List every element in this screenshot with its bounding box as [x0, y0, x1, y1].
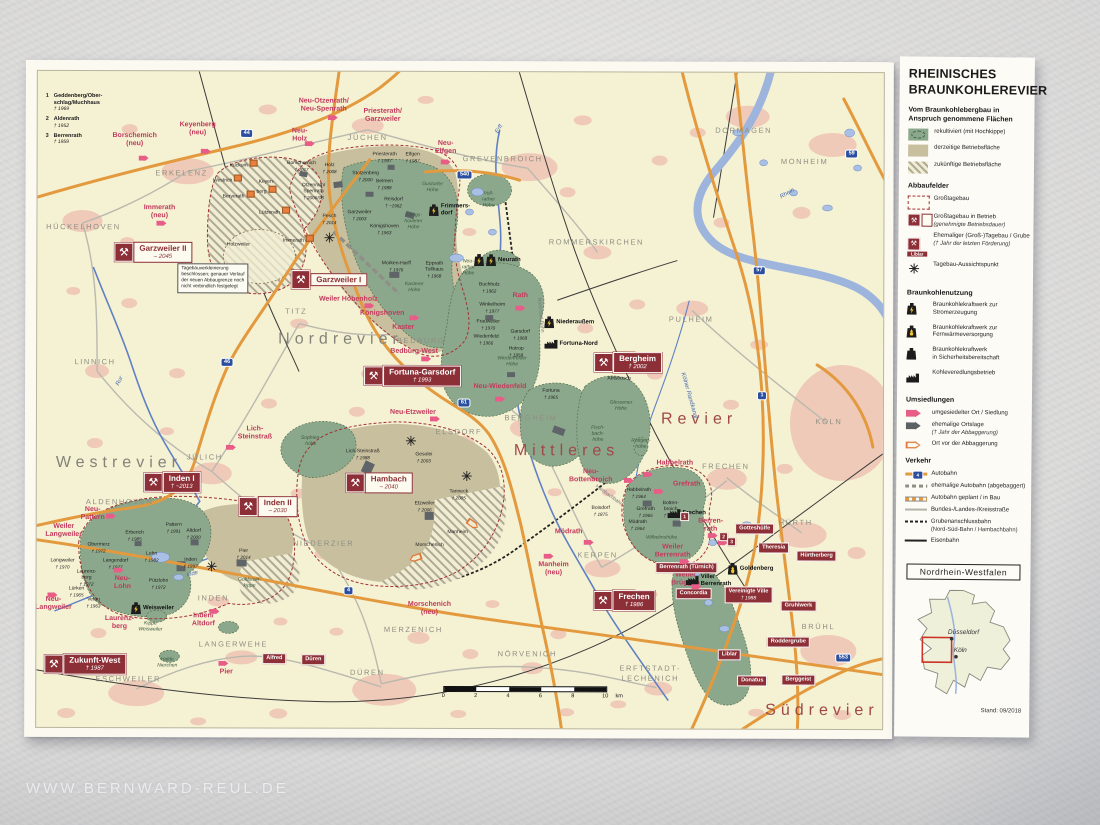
village-name: Obermerz	[87, 542, 109, 548]
um-gray-icon	[906, 422, 921, 430]
autobahn-shield: 46	[221, 358, 234, 367]
resettled-place-label: Manheim (neu)	[538, 561, 568, 577]
former-village-label: Lich-Steinstraß† 1988	[346, 449, 380, 460]
former-village-label: Epprath Tollhaus† 1968	[425, 262, 443, 279]
scale-tick-label: 2	[474, 693, 477, 699]
mine-year: – 2030	[264, 508, 292, 515]
spoil-tip-label: Gustorfer Höhe	[422, 182, 443, 194]
village-demolition-year: † 2008	[323, 169, 337, 174]
former-village-label: Kuckum	[230, 160, 258, 170]
spoil-tip-label: Kasterer Höhe	[405, 282, 424, 294]
mine-year: † 1987	[69, 665, 120, 672]
resettled-place-label: Keyenberg (neu)	[180, 121, 216, 137]
legend-item: Grubenanschlussbahn(Nord-Süd-Bahn / Hamb…	[905, 519, 1023, 535]
resettled-place-label: Weiler Berrenrath	[655, 543, 691, 559]
resettled-place-label: Kaster	[392, 324, 414, 332]
legend-item: ehemalige Ortslage(† Jahr der Abbaggerun…	[906, 422, 1024, 438]
former-village-label: Garsdorf† 1968	[510, 330, 529, 341]
power-plant-name: Neurath	[498, 257, 521, 264]
legend-item-label: Eisenbahn	[931, 538, 959, 546]
legend-item: Braunkohlekraftwerk zur Stromerzeugung	[907, 302, 1025, 321]
city-label: ERFTSTADT- LECHENICH	[619, 664, 681, 684]
village-demolition-year: † 1963	[370, 230, 399, 235]
factory-icon	[668, 509, 681, 518]
village-demolition-year: † 1985	[125, 536, 144, 541]
legend-item: Autobahn geplant / in Bau	[905, 495, 1023, 504]
mine-year: † 2002	[619, 364, 656, 371]
city-label: KÖLN	[816, 417, 843, 427]
village-demolition-year: † 1965	[637, 513, 655, 518]
resettled-place-label: Inden/ Altdorf	[192, 612, 215, 628]
map-canvas: WestrevierNordrevierMittleresRevierSüdre…	[35, 70, 885, 730]
village-name: Abtsbusch	[607, 376, 630, 382]
resettled-place-label: Neu- Langweiler	[35, 596, 72, 612]
village-name: Wiedenfeld	[474, 334, 499, 340]
active-mine-box	[921, 214, 932, 227]
item-name: Geddenberg/Ober- schlag/Muchhaus† 1969	[54, 93, 103, 112]
item-name: Berrenrath† 1959	[54, 133, 82, 146]
power-plant: Niederaußem	[544, 316, 594, 328]
legend-item: Tagebau-Aussichtspunkt	[907, 261, 1025, 281]
sw-rek-icon	[908, 128, 928, 140]
vk-b-icon	[905, 509, 927, 511]
village-name: Frauweiler	[477, 319, 500, 325]
legend-body: Vom Braunkohlebergbau in Anspruch genomm…	[905, 98, 1027, 551]
legend-item: Bundes-/Landes-/Kreisstraße	[905, 507, 1023, 516]
power-plant: Fortuna-Nord	[544, 340, 597, 349]
former-village-label: Holz† 2008	[323, 163, 337, 174]
former-village-label: Otzenrath/ Spenrath† 2006/08	[302, 183, 325, 200]
vk-g-icon	[905, 497, 927, 502]
crossed-hammers-icon: ⚒	[144, 473, 163, 492]
mine-label-frechen: ⚒Frechen† 1986	[593, 590, 655, 611]
photo-of-mining-map-poster: WestrevierNordrevierMittleresRevierSüdre…	[0, 0, 1100, 825]
former-pit-label: Alfred	[262, 653, 286, 664]
former-village-label: Manheim	[447, 530, 468, 536]
village-demolition-year: † 1965	[69, 592, 84, 597]
city-label: INDEN	[198, 593, 229, 603]
village-name: Buchholz	[479, 282, 500, 288]
legend-item-sublabel: (Nord-Süd-Bahn / Hambachbahn)	[931, 526, 1018, 534]
legend-item: Ort vor der Abbaggerung	[906, 441, 1024, 450]
mine-label-garzweiler-i: ⚒Garzweiler I	[291, 270, 367, 289]
resettled-place-label: Neu- Pattern	[81, 506, 105, 522]
pit-year: † 1988	[729, 595, 769, 601]
former-pit-label: Hürtherberg	[796, 551, 836, 562]
village-demolition-year: † 2000	[186, 535, 200, 540]
item-year: † 1952	[54, 123, 80, 129]
mine-reduction-note: Tagebauverkleinerung beschlossen; genaue…	[177, 263, 248, 293]
item-year: † 1959	[54, 139, 82, 145]
former-village-label: Boisdorf† 1875	[592, 506, 610, 517]
scale-tick-label: 0	[442, 693, 445, 699]
mine-year: † ~2013	[169, 483, 195, 490]
city-label: MERZENICH	[384, 625, 443, 635]
legend-title-line2: BRAUNKOHLEREVIER	[909, 82, 1027, 99]
power-plant-icon	[728, 563, 738, 575]
village-demolition-year: † 2006/08	[302, 195, 325, 200]
vk-a-icon: 4	[905, 473, 927, 476]
village-demolition-year: † 2000	[352, 177, 379, 182]
legend-title-line1: RHEINISCHES	[909, 67, 1027, 84]
mine-name: Garzweiler I	[316, 275, 361, 285]
crossed-hammers-icon: ⚒	[907, 237, 920, 250]
mine-name: Zukunft-West	[69, 656, 120, 666]
legend-item-label: Braunkohlekraftwerk zur Stromerzeugung	[933, 302, 998, 318]
inset-city-koeln: Köln	[954, 647, 967, 654]
legend-item-icon-cell	[908, 145, 934, 157]
resettled-place-label: Bedburg-West	[390, 348, 438, 356]
mine-name: Garzweiler II	[139, 244, 186, 254]
legend-item: rekultiviert (mit Hochkippe)	[908, 128, 1026, 141]
pre-demolition-village-icon	[282, 207, 290, 214]
nrw-inset-title: Nordrhein-Westfalen	[906, 564, 1020, 581]
village-demolition-year: † 1997	[184, 564, 198, 569]
legend-item-label: umgesiedelter Ort / Siedlung	[932, 409, 1008, 417]
mine-name: Frechen	[618, 592, 649, 602]
city-label: ELSDORF	[436, 427, 483, 437]
village-demolition-year: † 1988	[346, 455, 380, 460]
village-name: Langendorf	[103, 558, 128, 564]
sw-bet-icon	[908, 145, 928, 157]
legend-item: ⚒LiblarEhemaliger (Groß-)Tagebau / Grube…	[907, 233, 1025, 258]
scale-segment	[444, 687, 476, 691]
power-plant-icon	[474, 254, 484, 266]
village-demolition-year: † 1963	[86, 603, 100, 608]
city-label: JÜCHEN	[348, 133, 388, 143]
village-demolition-year: † 1968	[425, 273, 443, 278]
region-label: Südrevier	[765, 702, 879, 720]
former-village-label: Königshoven† 1963	[370, 224, 399, 235]
city-label: LINNICH	[74, 357, 115, 367]
legend-item-label: Autobahn	[931, 471, 957, 479]
power-plant: Frimmers- dorf	[429, 203, 470, 216]
legend-item-icon-cell: 4	[905, 471, 931, 476]
city-label: JÜLICH	[187, 452, 223, 462]
former-village-label: Immerath	[283, 235, 314, 245]
mine-year: † 1986	[618, 602, 649, 609]
city-label: BEDBURG	[397, 336, 445, 346]
ab-ehemalig-icon: ⚒Liblar	[907, 233, 927, 257]
autobahn-shield: 57	[753, 266, 766, 275]
legend-item: 4Autobahn	[905, 471, 1023, 480]
pit-name: Düren	[305, 656, 321, 662]
legend-item-label: zukünftige Betriebsfläche	[934, 161, 1001, 169]
city-label: KERPEN	[577, 550, 617, 560]
former-village-label: Belmen† 1988	[376, 179, 393, 190]
city-label: NÖRVENICH	[498, 649, 557, 659]
scale-bar: 0246810km	[443, 686, 607, 701]
pit-name: Berggeist	[785, 677, 811, 683]
pre-demolition-village-icon	[234, 175, 242, 182]
spoil-tip-label: Königs- hovener Höhe	[404, 213, 422, 230]
region-label: Westrevier	[56, 454, 182, 472]
mine-name: Inden I	[169, 474, 195, 484]
power-plant-icon	[907, 325, 917, 337]
city-label: ESCHWEILER	[95, 674, 161, 684]
pl-waerme-icon	[906, 324, 916, 342]
village-name: Borschemich	[287, 160, 316, 166]
former-pit-label: Berggeist	[781, 674, 815, 685]
former-pit-label: Gotteshülfe	[735, 523, 774, 534]
legend-item-icon-cell	[906, 324, 932, 342]
power-plant-name: Fortuna-Nord	[559, 341, 597, 348]
village-demolition-year: † 1976	[382, 267, 411, 272]
village-demolition-year: † 2006	[415, 507, 435, 512]
um-orange-icon	[906, 441, 921, 449]
mine-year: – 2040	[371, 484, 407, 491]
mine-label-inden-ii: ⚒Inden II– 2030	[239, 496, 298, 517]
spoil-tip-label: Glessener Höhe	[610, 401, 633, 413]
legend-item-label: Braunkohlekraftwerk zur Fernwärmeversorg…	[932, 325, 997, 341]
power-plant-icon	[429, 204, 439, 216]
lightning-icon	[133, 606, 138, 613]
former-village-label: Berverath	[223, 191, 255, 201]
resettled-place-label: Neu- Bottenbroich	[569, 468, 613, 484]
village-name: Tanneck	[449, 488, 468, 494]
numbered-pit-marker: 3	[727, 537, 736, 546]
former-village-label: Buchholz† 1962	[479, 283, 500, 294]
power-plant: Weisweiler	[131, 602, 174, 614]
flame-icon	[909, 329, 914, 336]
vk-ei-icon	[905, 540, 927, 541]
resettled-place-label: Priesterath/ Garzweiler	[363, 108, 402, 124]
scale-segment	[477, 687, 509, 691]
um-pink-icon	[906, 409, 921, 417]
pre-demolition-village-icon	[246, 191, 254, 198]
former-pit-label: Theresia	[758, 542, 789, 553]
village-demolition-year: † 1977	[479, 308, 505, 313]
spoil-tip-label: Fisch- bach- höhe	[591, 426, 605, 443]
village-name: Boisdorf	[592, 505, 610, 511]
village-name: Habbelrath	[627, 487, 651, 493]
city-label: HÜCKELHOVEN	[46, 222, 121, 232]
legend-item: umgesiedelter Ort / Siedlung	[906, 409, 1024, 418]
mine-name: Inden II	[264, 498, 292, 508]
region-label: Revier	[661, 411, 737, 429]
pre-demolition-village-icon	[306, 235, 314, 242]
village-name: Hotrop	[509, 346, 524, 352]
legend-item-icon-cell	[905, 519, 931, 523]
former-village-label: Frauweiler† 1970	[477, 320, 500, 331]
village-demolition-year: † 1972	[87, 548, 109, 553]
legend-item: Eisenbahn	[905, 538, 1023, 547]
item-number: 1	[46, 93, 54, 112]
spoil-tip-label: Sophien- höhe	[301, 436, 321, 448]
scale-tick-label: 4	[506, 693, 509, 699]
legend-item-icon-cell	[906, 409, 932, 417]
pit-name: Donatus	[741, 677, 763, 683]
legend-item-icon-cell	[907, 302, 933, 320]
former-pit-label: Donatus	[737, 675, 767, 686]
village-demolition-year: † 1991	[166, 528, 182, 533]
spoil-tip-label: Halde Nierchen	[157, 657, 177, 669]
resettled-place-label: Königshoven	[360, 310, 404, 318]
village-demolition-year: † 1875	[592, 512, 610, 517]
power-plant-name: Frimmers- dorf	[441, 203, 470, 216]
city-label: LANGERWEHE	[199, 639, 268, 649]
city-label: ERKELENZ	[155, 168, 207, 178]
resettled-place-label: Neu- Elfgen	[435, 140, 456, 156]
village-name: Reisdorf	[384, 196, 403, 202]
mine-name-box: Inden II– 2030	[258, 496, 298, 517]
former-village-label: Obermerz† 1972	[87, 543, 109, 554]
village-name: Mödrath	[629, 519, 647, 525]
former-village-label: Elfgen† 1987	[406, 152, 420, 163]
scale-labels: 0246810km	[443, 693, 607, 701]
power-plant-name: Ville/ Berrenrath	[701, 574, 732, 587]
village-name: Morschenich	[415, 542, 443, 548]
power-plant-icon	[544, 316, 554, 328]
city-label: BRÜHL	[802, 622, 835, 632]
city-label: BERGHEIM	[505, 413, 558, 423]
village-demolition-year: † 1966	[474, 340, 499, 345]
nrw-inset: Nordrhein-Westfalen Düsseldorf Köln Stan…	[903, 564, 1022, 715]
city-label: DORMAGEN	[715, 126, 772, 136]
item-year: † 1969	[54, 106, 103, 112]
crossed-hammers-icon: ⚒	[346, 473, 365, 492]
village-name: Lürken	[69, 585, 84, 591]
pit-name: Hürtherberg	[800, 553, 832, 559]
former-village-label: Priesterath† 1997	[373, 152, 397, 163]
legend-section-heading: Braunkohlenutzung	[907, 289, 1025, 299]
resettled-place-label: Immerath (neu)	[144, 204, 176, 220]
former-village-label: Langweiler† 1970	[50, 558, 74, 569]
spoil-tip-label: Wilhelmshöhe	[646, 536, 677, 542]
village-demolition-year: † 1987	[406, 158, 420, 163]
former-village-label: Morken-Harff† 1976	[382, 261, 411, 272]
village-name: Grefrath	[637, 506, 655, 512]
village-demolition-year: † 1968	[510, 335, 529, 340]
region-label: Nordrevier	[278, 331, 403, 349]
scale-segment	[509, 687, 541, 691]
legend-item-icon-cell	[908, 195, 934, 209]
crossed-hammers-icon: ⚒	[114, 243, 133, 262]
former-village-label: Grefrath† 1965	[637, 507, 655, 518]
mine-name-box: Garzweiler I	[310, 273, 367, 287]
village-name: Laurenz- berg	[77, 569, 97, 581]
legend-section-heading: Umsiedlungen	[906, 396, 1024, 406]
former-pit-label: Liblar	[718, 649, 741, 660]
spoil-tip-label: Voll- rather Höhe	[482, 191, 495, 208]
example-pit-tag: Liblar	[907, 252, 927, 257]
resettled-place-label: Neu-Wiedenfeld	[474, 383, 527, 391]
resettled-place-label: Mödrath	[555, 528, 583, 536]
crossed-hammers-icon: ⚒	[594, 353, 613, 372]
village-name: Etzweiler	[415, 500, 435, 506]
village-name: Altdorf	[186, 528, 200, 534]
legend-item-icon-cell: ⚒Liblar	[907, 233, 933, 257]
village-demolition-year: † ~1962	[384, 203, 403, 208]
nrw-shape	[903, 586, 1022, 705]
village-name: Belmen	[376, 178, 393, 184]
autobahn-shield: 540	[456, 170, 472, 179]
autobahn-shield: 553	[835, 653, 851, 662]
village-name: Elfgen	[406, 151, 420, 157]
village-name: Westrich	[213, 177, 232, 183]
former-village-label: Westrich	[213, 174, 242, 184]
village-name: Stolzenberg	[352, 170, 379, 176]
legend-item-label: ehemalige Autobahn (abgebaggert)	[931, 483, 1025, 491]
resettled-place-label: Morschenich (neu)	[408, 601, 451, 617]
crossed-hammers-icon: ⚒	[907, 213, 920, 226]
village-name: Erberich	[125, 530, 144, 536]
village-name: Velau	[87, 597, 100, 603]
legend-numbered-list: 1Geddenberg/Ober- schlag/Muchhaus† 19692…	[46, 93, 138, 150]
legend-item-sublabel: († Jahr der Abbaggerung)	[932, 429, 998, 437]
flame-icon	[730, 566, 735, 573]
village-name: Otzenrath/ Spenrath	[302, 182, 325, 194]
village-demolition-year: † 2017	[287, 167, 316, 172]
village-demolition-year: † 2014	[237, 555, 251, 560]
ab-aussicht-icon	[907, 261, 921, 280]
village-name: Garsdorf	[510, 329, 529, 335]
legend-section-heading: Vom Braunkohlebergbau in Anspruch genomm…	[908, 107, 1026, 126]
village-name: Inden	[184, 557, 197, 563]
village-name: Berverath	[223, 194, 245, 200]
lightning-icon	[489, 258, 494, 265]
village-demolition-year: † 2005	[449, 495, 468, 500]
factory-icon	[906, 373, 919, 382]
legend-stand-date: Stand: 09/2018	[903, 708, 1021, 715]
autobahn-shield: 59	[845, 150, 858, 159]
village-demolition-year: † 1970	[50, 564, 74, 569]
village-demolition-year: † 1964	[627, 494, 651, 499]
village-name: Holzweiler	[227, 242, 250, 248]
legend-item-label: Tagebau-Aussichtspunkt	[933, 261, 998, 269]
spoil-tip-label: Röttgen- höhe	[631, 439, 650, 451]
resettled-place-label: Neu-Otzenrath/ Neu-Spenrath	[299, 98, 349, 114]
mine-name-box: Zukunft-West† 1987	[63, 654, 126, 675]
autobahn-shield: 4	[343, 586, 353, 595]
legend-item-icon-cell	[908, 161, 934, 173]
vk-e-icon	[905, 485, 927, 488]
ab-betrieb-icon: ⚒	[907, 213, 932, 226]
crossed-hammers-icon: ⚒	[364, 366, 383, 385]
spoil-tip-label: Goldstein- kippe	[238, 578, 261, 590]
village-name: Lohn	[146, 551, 157, 557]
pit-name: Berrenrath (Türnich)	[659, 564, 713, 570]
former-village-label: Wiedenfeld† 1966	[474, 335, 499, 346]
city-label: ROMMERSKIRCHEN	[549, 237, 644, 247]
village-name: Garzweiler	[348, 209, 372, 215]
power-plant: Neurath	[474, 254, 521, 266]
former-village-label: Lohn† 1982	[145, 552, 159, 563]
power-plant-icon	[486, 254, 496, 266]
village-name: Lich-Steinstraß	[346, 448, 380, 454]
pit-name: Gruhlwerk	[785, 603, 813, 609]
mine-label-hambach: ⚒Hambach– 2040	[346, 472, 413, 493]
village-name: Langweiler	[50, 557, 74, 563]
legend-item: Kohleveredlungsbetrieb	[906, 369, 1024, 388]
power-plant-icon	[131, 602, 141, 614]
mine-label-garzweiler-ii: ⚒Garzweiler II– 2045	[114, 242, 192, 263]
legend-item-icon-cell	[906, 441, 932, 449]
legend-item-label: Großtagebau	[934, 195, 969, 203]
legend-item-label: rekultiviert (mit Hochkippe)	[934, 128, 1005, 136]
pl-veredlung-icon	[906, 369, 919, 387]
legend-item-icon-cell	[906, 347, 932, 365]
village-demolition-year: † 1970	[477, 325, 500, 330]
village-name: Lützerath	[259, 210, 280, 216]
former-village-label: Fortuna† 1965	[542, 389, 559, 400]
legend-item-label: Grubenanschlussbahn(Nord-Süd-Bahn / Hamb…	[931, 519, 1018, 534]
legend-item-icon-cell	[906, 422, 932, 430]
pre-demolition-village-icon	[269, 186, 277, 193]
mine-label-bergheim: ⚒Bergheim† 2002	[594, 352, 662, 373]
former-village-label: Winkelheim† 1977	[479, 303, 505, 314]
power-plant-icon	[906, 348, 916, 360]
